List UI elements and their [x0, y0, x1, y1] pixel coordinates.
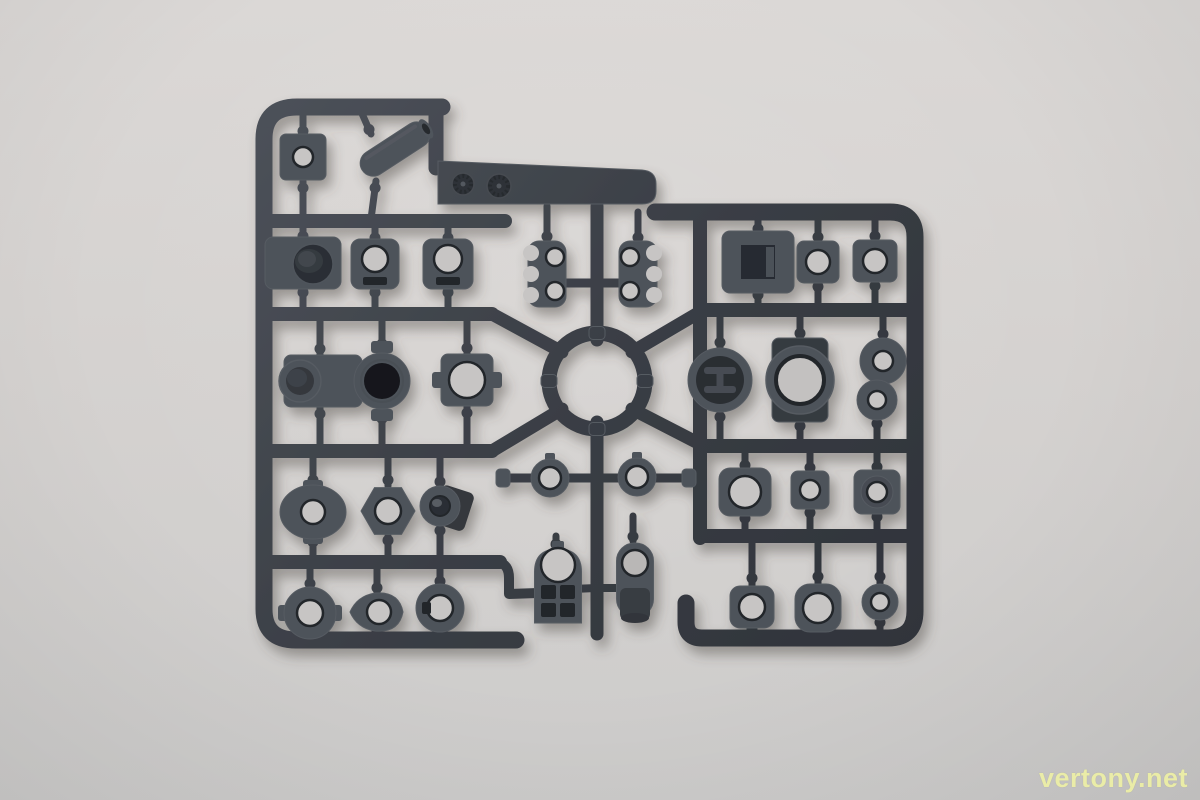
sprue-svg	[0, 0, 1200, 800]
part-rod-end	[617, 543, 654, 623]
part-slot-block-1	[351, 239, 399, 289]
part-h-core-cylinder	[688, 348, 752, 412]
sprue-photograph: vertony.net	[0, 0, 1200, 800]
gate-stem	[298, 181, 309, 219]
part-square-frame	[722, 231, 794, 293]
part-barrel-bushing	[795, 584, 841, 632]
gate-stem	[813, 538, 824, 585]
part-dark-bore-ring	[354, 341, 410, 421]
mold-tab-plate	[438, 161, 656, 204]
part-hex-nut	[361, 488, 415, 535]
runner-diagonal-sw	[492, 409, 562, 451]
part-slot-block-2	[423, 239, 473, 289]
part-collar-ring-left	[531, 453, 569, 497]
gate-stem	[715, 312, 726, 349]
mold-date-wheel-icon	[487, 174, 511, 198]
runner-stub-left-4	[498, 562, 538, 594]
gate-stem	[628, 516, 639, 542]
part-double-cylinder	[857, 338, 906, 420]
gate-stem	[542, 206, 553, 243]
part-claw-comb-left	[523, 241, 566, 307]
gate-stem	[370, 181, 381, 219]
part-square-bushing-2	[797, 241, 839, 283]
gate-stem	[315, 406, 326, 449]
part-collar-ring-right	[618, 452, 656, 496]
watermark: vertony.net	[1039, 763, 1188, 794]
part-through-block	[432, 354, 502, 406]
part-small-ring	[862, 584, 898, 620]
runner-diagonal-ne	[632, 312, 700, 352]
part-socket-block-large	[719, 468, 771, 516]
part-teardrop-eyelet	[350, 593, 403, 631]
gate-stem	[435, 453, 446, 488]
gate-stem	[875, 538, 886, 585]
sprue	[264, 107, 915, 640]
runner-diagonal-se	[632, 409, 700, 444]
gate-stem	[435, 524, 446, 560]
part-flanged-cylinder-large	[766, 338, 834, 422]
part-cylinder-block	[279, 355, 362, 407]
part-socket-block-small	[791, 471, 829, 509]
part-flanged-collar	[280, 480, 346, 544]
part-boss-block	[854, 470, 900, 514]
mold-date-wheel-icon	[452, 173, 474, 195]
gate-stem	[747, 538, 758, 587]
part-recess-block	[265, 237, 341, 289]
gate-stem	[462, 405, 473, 449]
part-claw-comb-right	[619, 241, 662, 307]
runner-cap-right	[682, 469, 696, 487]
part-square-bushing-3	[853, 240, 897, 282]
part-keyed-ring	[416, 584, 464, 632]
runner-cap-left	[496, 469, 510, 487]
gate-stem	[315, 316, 326, 356]
gate-stem	[633, 212, 644, 243]
part-angled-cylinder	[420, 484, 475, 533]
runner-diagonal-nw	[492, 314, 562, 352]
part-square-bushing	[280, 134, 326, 180]
part-d-bracket	[730, 586, 774, 628]
part-grid-bracket	[535, 541, 582, 623]
gate-stem	[462, 316, 473, 355]
